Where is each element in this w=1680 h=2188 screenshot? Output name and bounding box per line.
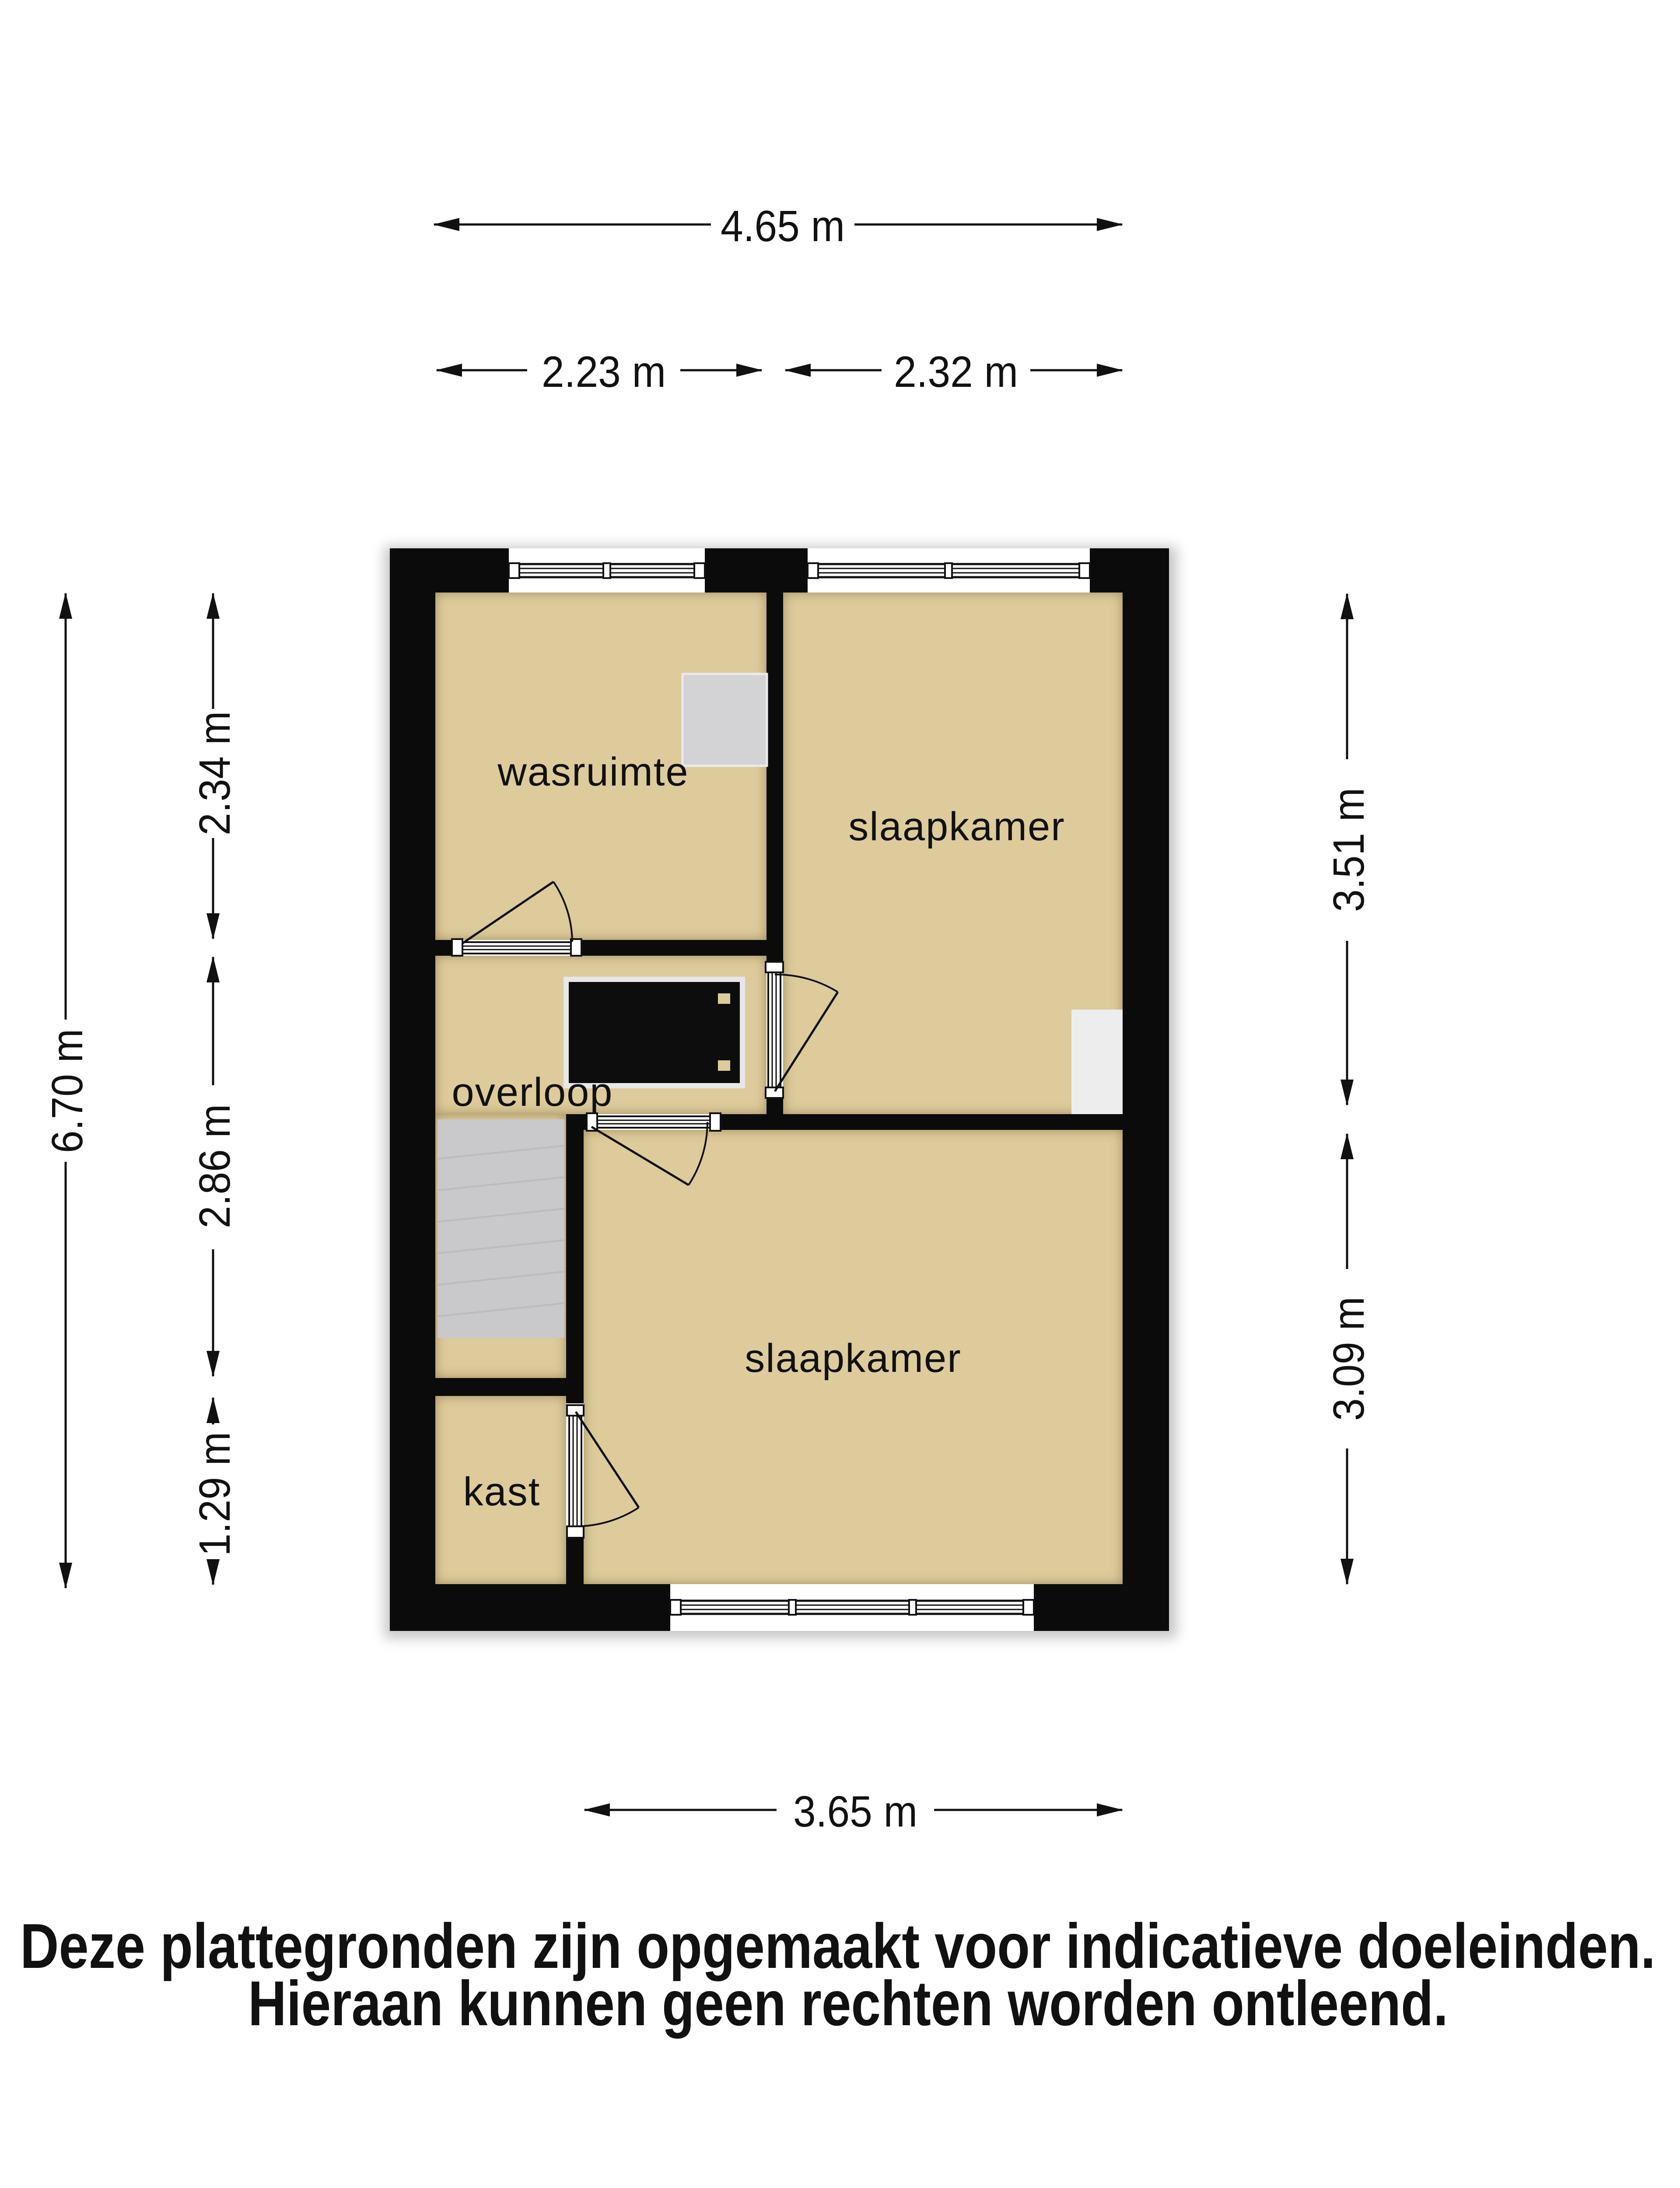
svg-text:slaapkamer: slaapkamer bbox=[848, 804, 1065, 849]
svg-text:slaapkamer: slaapkamer bbox=[745, 1336, 962, 1381]
svg-text:Hieraan kunnen geen rechten wo: Hieraan kunnen geen rechten worden ontle… bbox=[248, 1968, 1448, 2039]
svg-text:kast: kast bbox=[463, 1469, 541, 1514]
svg-text:3.51 m: 3.51 m bbox=[1324, 788, 1373, 912]
svg-text:3.65 m: 3.65 m bbox=[793, 1787, 917, 1836]
svg-text:2.32 m: 2.32 m bbox=[894, 347, 1018, 396]
svg-text:2.23 m: 2.23 m bbox=[542, 347, 666, 396]
svg-text:2.34 m: 2.34 m bbox=[190, 711, 239, 835]
svg-text:2.86 m: 2.86 m bbox=[190, 1104, 239, 1228]
svg-text:3.09 m: 3.09 m bbox=[1324, 1297, 1373, 1421]
svg-text:wasruimte: wasruimte bbox=[497, 750, 689, 794]
svg-text:6.70 m: 6.70 m bbox=[43, 1029, 92, 1153]
svg-text:overloop: overloop bbox=[452, 1070, 613, 1115]
svg-text:4.65 m: 4.65 m bbox=[721, 202, 845, 251]
svg-text:1.29 m: 1.29 m bbox=[190, 1432, 239, 1556]
